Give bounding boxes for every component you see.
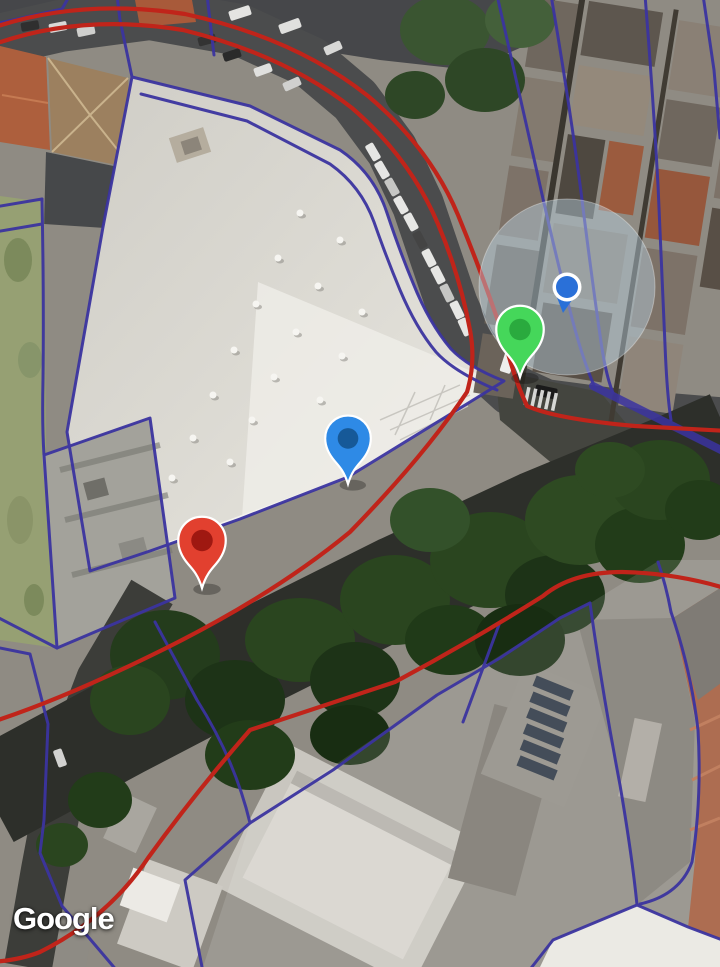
google-logo[interactable]: Google xyxy=(13,901,114,937)
map-viewport[interactable]: Google xyxy=(0,0,720,967)
satellite-map xyxy=(0,0,720,967)
